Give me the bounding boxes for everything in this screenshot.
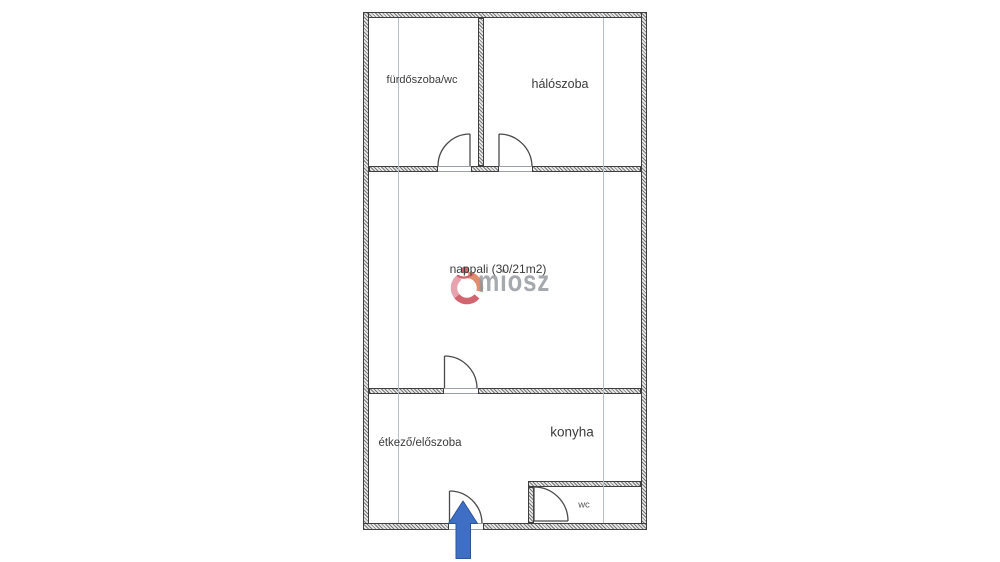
entrance-arrow-shape <box>449 501 478 559</box>
floorplan-canvas: miosz fürdőszoba/wc hálószoba nappali (3… <box>0 0 1000 562</box>
entrance-arrow <box>0 0 1000 562</box>
